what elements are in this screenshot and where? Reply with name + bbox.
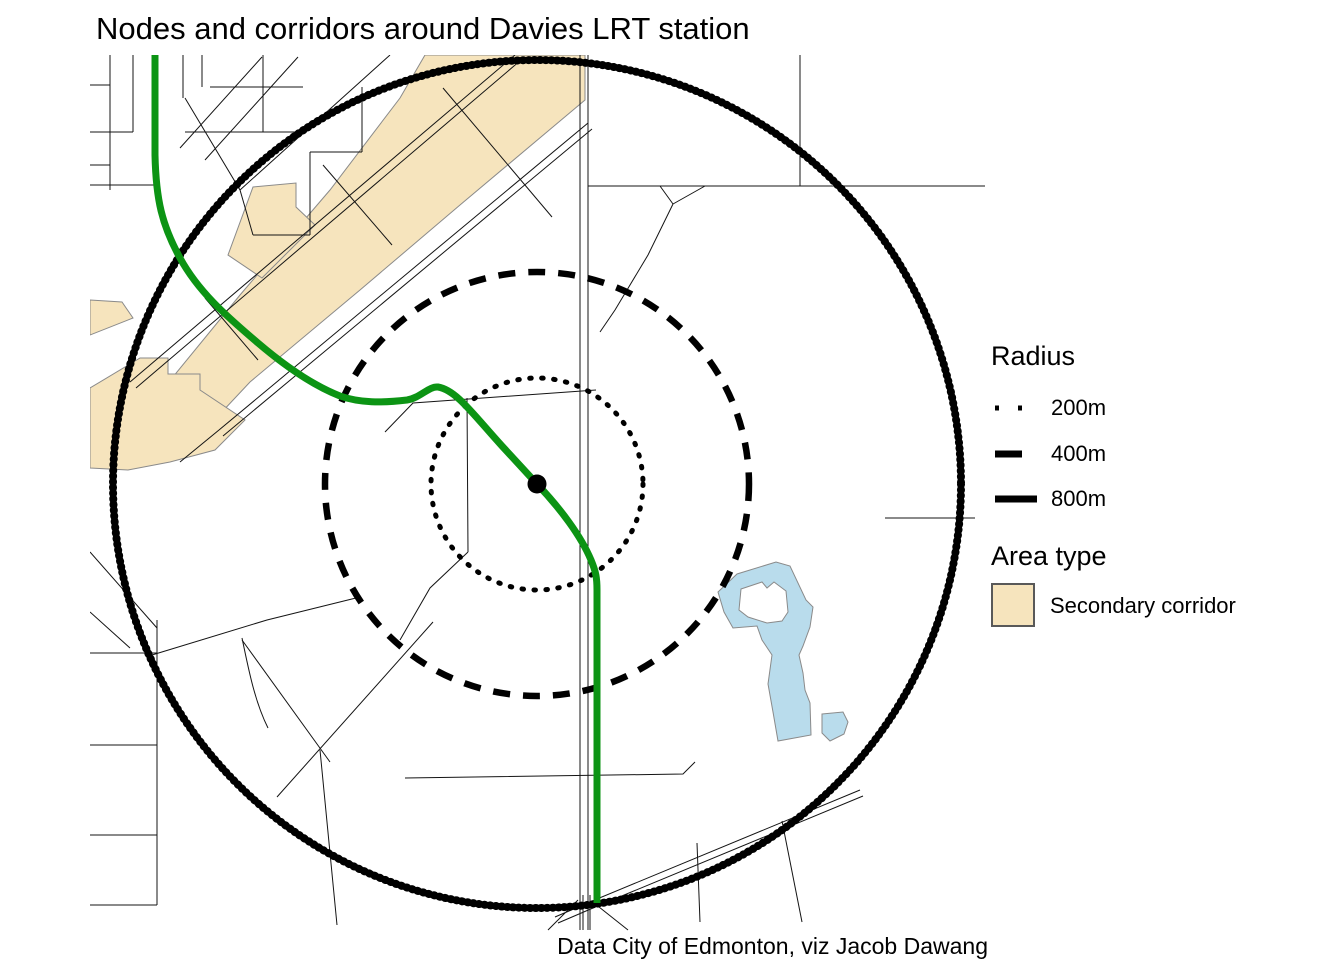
page-title: Nodes and corridors around Davies LRT st… <box>96 12 750 46</box>
water-polygons <box>718 562 848 741</box>
secondary-corridor-polygons <box>90 55 585 470</box>
figure: Nodes and corridors around Davies LRT st… <box>0 0 1344 960</box>
data-credit-caption: Data City of Edmonton, viz Jacob Dawang <box>557 933 988 960</box>
station-point <box>528 475 547 494</box>
map-canvas <box>0 0 1344 960</box>
